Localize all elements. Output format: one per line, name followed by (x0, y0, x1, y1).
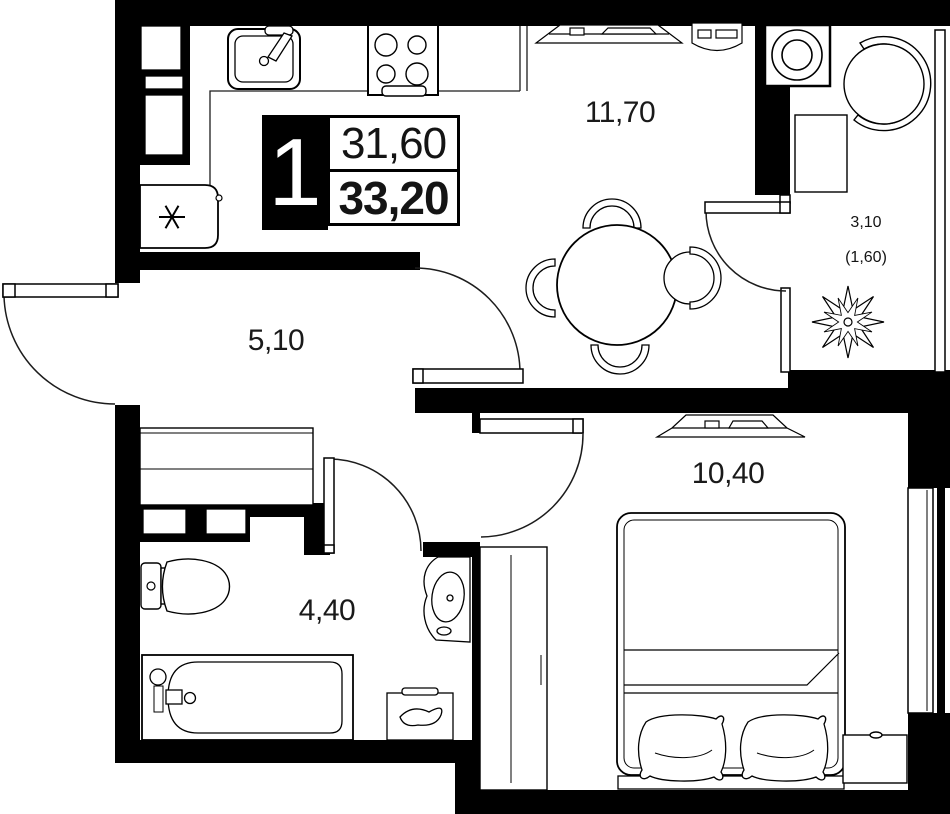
kitchen-sink (228, 26, 300, 89)
chair-left (526, 259, 555, 317)
pedestal-sink (424, 557, 470, 642)
hallway-wardrobe (140, 428, 313, 505)
room-label-hallway: 5,10 (248, 324, 304, 358)
bed (617, 513, 845, 789)
room-label-balcony: 3,10 (1,60) (845, 205, 887, 275)
balcony-partition (781, 288, 790, 372)
chair-top (583, 199, 641, 228)
unit-area-top: 31,60 (327, 115, 460, 172)
room-label-bathroom: 4,40 (299, 594, 355, 628)
plant (812, 286, 884, 358)
media-console (692, 23, 742, 51)
chair-bottom (591, 345, 649, 374)
dining-table (526, 199, 721, 374)
stove (368, 25, 438, 96)
entry-door (3, 284, 118, 404)
room-label-bedroom: 10,40 (692, 457, 765, 491)
unit-area-bottom: 33,20 (327, 169, 460, 226)
balcony-area: 3,10 (845, 205, 887, 240)
balcony-area-reduced: (1,60) (845, 240, 887, 275)
bath-faucet-icon (150, 669, 166, 685)
armchair (844, 37, 931, 131)
living-room-door (413, 268, 523, 383)
floor-plan-drawing (0, 0, 950, 814)
bathtub (142, 655, 353, 740)
bedroom-door (480, 419, 583, 537)
laundry-basket (387, 688, 453, 740)
bathroom-door (324, 458, 421, 553)
refrigerator (140, 185, 222, 248)
toilet (141, 559, 230, 614)
washing-machine (765, 25, 830, 86)
pillow-right (741, 715, 828, 781)
tv-bedroom (657, 415, 805, 437)
bedroom-wardrobe (480, 547, 547, 790)
floor-plan: 11,70 3,10 (1,60) 5,10 10,40 4,40 1 31,6… (0, 0, 950, 814)
room-label-kitchen-living: 11,70 (585, 96, 655, 130)
balcony-table (795, 115, 847, 192)
balcony-window (935, 30, 945, 372)
unit-badge: 1 31,60 33,20 (262, 115, 460, 230)
tv-living-room (536, 25, 682, 43)
nightstand (843, 732, 907, 783)
faucet-icon (265, 26, 293, 35)
unit-number: 1 (262, 115, 328, 230)
pillow-left (639, 715, 726, 781)
bedroom-window (908, 488, 933, 713)
